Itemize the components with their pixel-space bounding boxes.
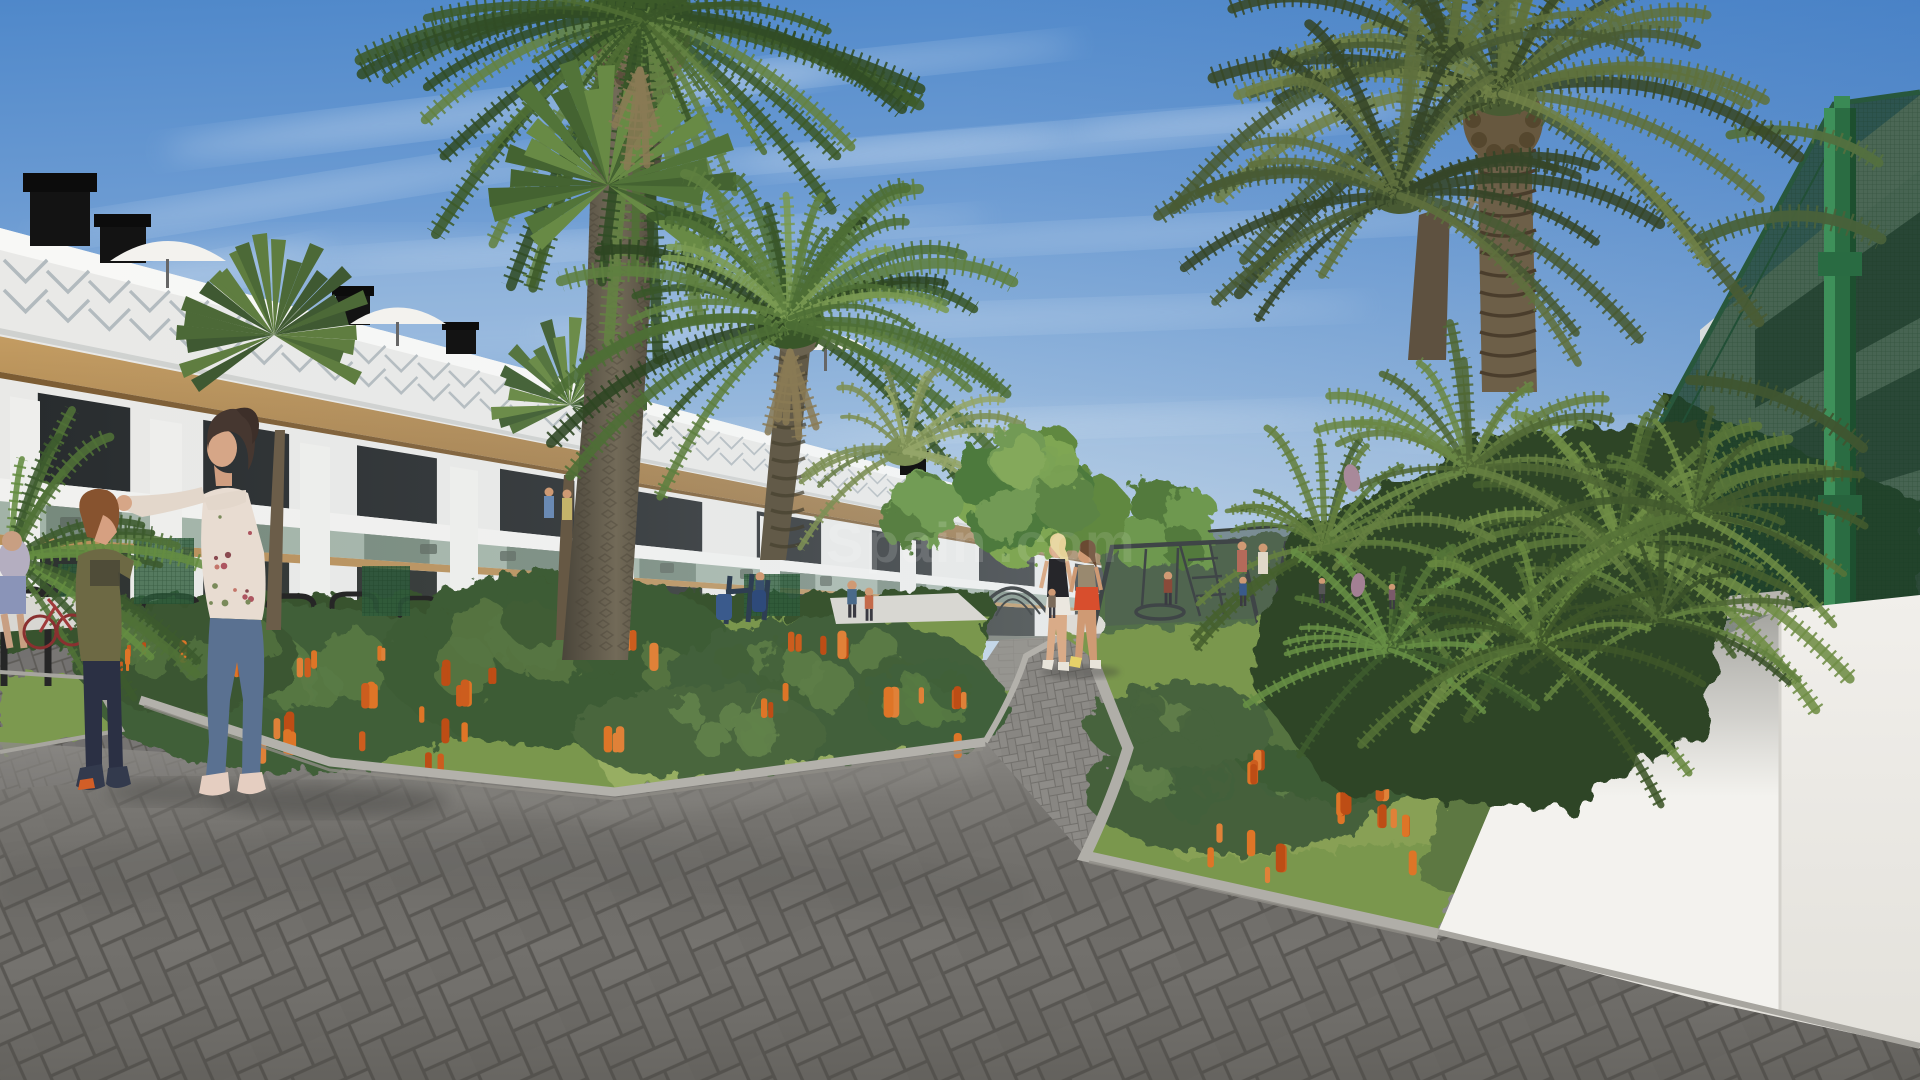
- svg-text:.com: .com: [998, 511, 1137, 574]
- svg-text:Spain: Spain: [826, 511, 988, 574]
